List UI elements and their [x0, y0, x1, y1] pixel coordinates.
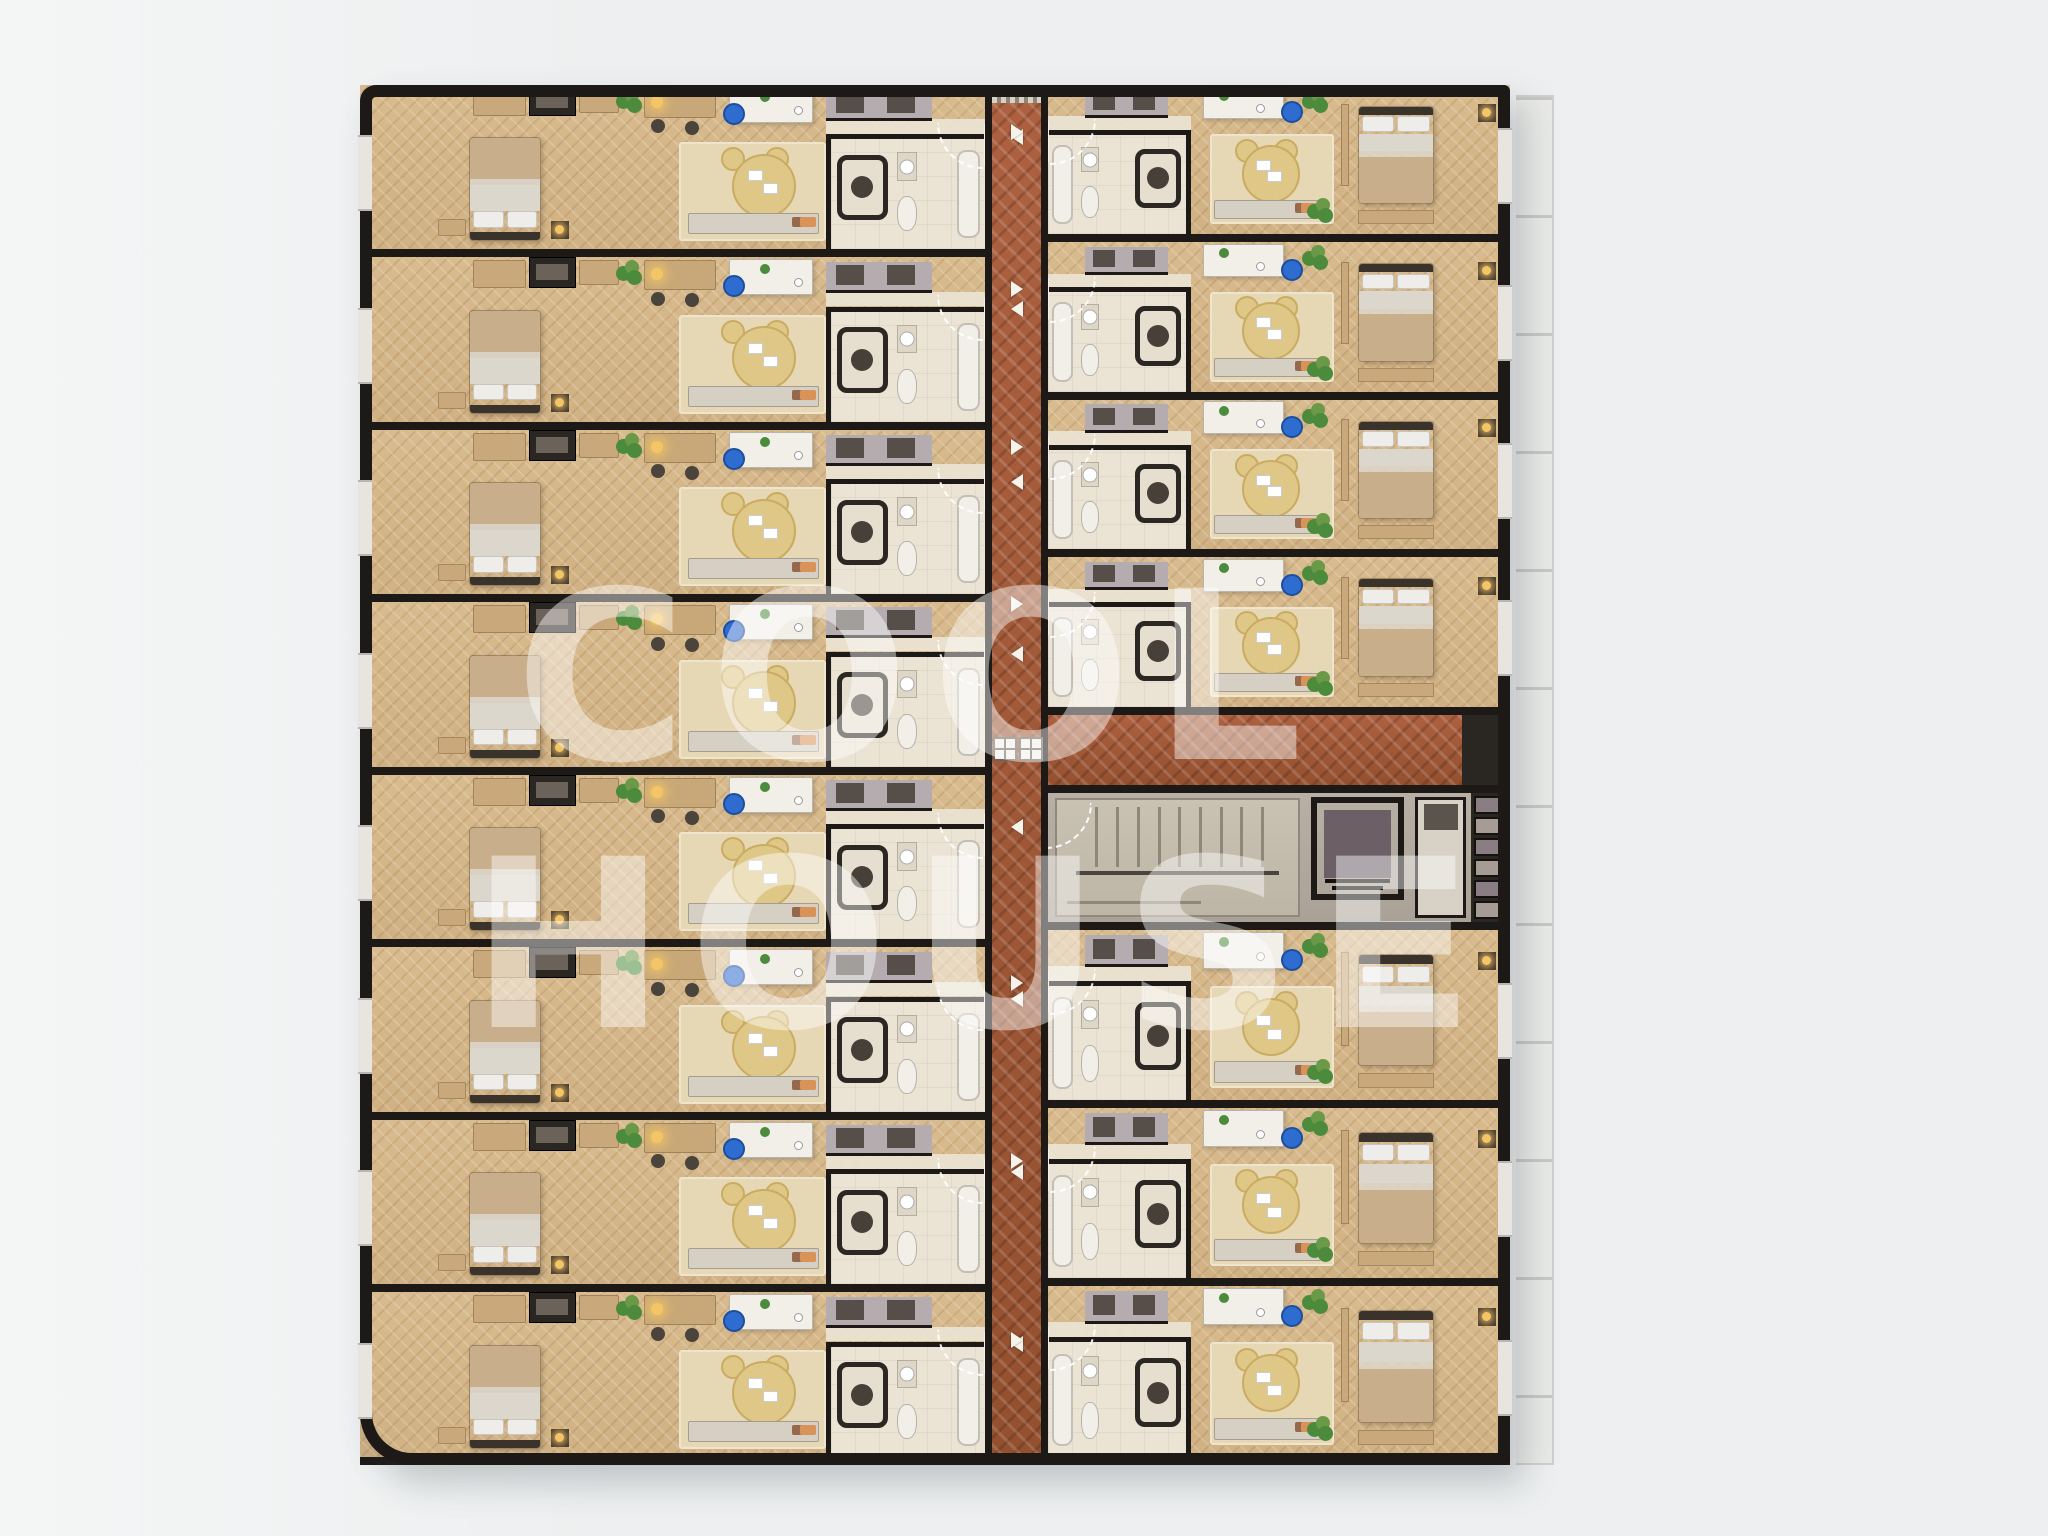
wardrobe-panel [1133, 565, 1155, 583]
table-lamp-icon [651, 1131, 663, 1143]
media-console [688, 386, 819, 407]
wardrobe-panel [887, 955, 915, 975]
plant [1307, 1059, 1333, 1085]
bed-headboard [470, 232, 540, 240]
console-table [644, 950, 716, 980]
lamp-icon [555, 915, 564, 924]
stool [651, 982, 665, 996]
paper-sheet [763, 1046, 778, 1057]
wardrobe-panel [836, 438, 864, 458]
shower-drain-icon [851, 1384, 873, 1406]
window [358, 1343, 372, 1419]
cabinet [473, 260, 526, 288]
door-direction-arrow-icon [1011, 596, 1023, 612]
stair-tread [1178, 807, 1181, 867]
wardrobe-panel [1133, 93, 1155, 111]
paper-sheet [1256, 475, 1271, 486]
pillow [507, 1074, 538, 1090]
door-direction-arrow-icon [1011, 1332, 1023, 1348]
shaft-wall [1462, 715, 1510, 785]
lamp-icon [555, 398, 564, 407]
paper-sheet [1267, 644, 1282, 655]
pillow [1362, 966, 1395, 984]
sink-basin [900, 677, 915, 692]
lamp-icon [555, 1260, 564, 1269]
bed-sheet [470, 1393, 540, 1420]
wardrobe-panel [836, 1128, 864, 1148]
staircase [1055, 798, 1300, 917]
desk-plant-icon [760, 264, 770, 274]
bed-blanket [1359, 1369, 1433, 1422]
nightstand [551, 1256, 569, 1274]
double-bed [469, 310, 541, 414]
pillow [473, 1074, 504, 1090]
cushion [800, 562, 816, 572]
stool [651, 119, 665, 133]
bed-sheet [1359, 1164, 1433, 1184]
plant [616, 260, 642, 286]
sink-basin [900, 159, 915, 174]
toilet [897, 1059, 917, 1094]
bench [438, 564, 466, 580]
door-direction-arrow-icon [1011, 439, 1023, 455]
nightstand [1478, 1130, 1496, 1148]
pillow [507, 556, 538, 572]
shower-drain-icon [1147, 167, 1169, 189]
wardrobe [1085, 935, 1168, 967]
toilet [1081, 344, 1099, 376]
bed-sheet [470, 703, 540, 730]
cushion [800, 390, 816, 400]
lamp-icon [1482, 581, 1491, 590]
partition-shelf [1341, 262, 1348, 345]
bed-sheet [1359, 134, 1433, 151]
desk [1203, 244, 1284, 277]
bed-headboard [1359, 955, 1433, 964]
sink-basin [900, 1022, 915, 1037]
bed-sheet [470, 185, 540, 211]
pillow [473, 1246, 504, 1262]
desk [1203, 1110, 1284, 1147]
lounge-armchair [1242, 998, 1300, 1056]
pillow [507, 901, 538, 917]
sink [897, 497, 917, 526]
desk-chair [723, 965, 745, 987]
paper-sheet [1256, 632, 1271, 643]
plant [1302, 560, 1328, 586]
shower-drain-icon [1147, 1025, 1169, 1047]
wardrobe-panel [836, 955, 864, 975]
shower [1135, 1358, 1181, 1427]
shower [837, 672, 888, 738]
shower [1135, 464, 1181, 524]
sink-basin [1083, 1363, 1098, 1378]
pillow [473, 211, 504, 227]
shower-drain-icon [851, 694, 873, 716]
lamp-icon [555, 1433, 564, 1442]
stool [685, 121, 699, 135]
stool [651, 1327, 665, 1341]
stair-landing-edge [1067, 901, 1202, 904]
desk-chair [1281, 1305, 1303, 1327]
double-bed [469, 482, 541, 585]
nightstand [1478, 419, 1496, 437]
paper-sheet [763, 528, 778, 539]
sink-basin [1083, 1185, 1098, 1200]
plant [1307, 1416, 1333, 1442]
paper-sheet [763, 356, 778, 367]
pillow [1397, 1144, 1430, 1162]
shower [837, 1362, 888, 1428]
wardrobe-panel [1093, 1295, 1115, 1316]
pillow [473, 384, 504, 400]
bench [1358, 368, 1434, 382]
console-table [644, 433, 716, 463]
unit-L8 [360, 1292, 985, 1465]
corridor-entry-mat [992, 91, 1041, 103]
double-bed [1358, 954, 1434, 1066]
sink [897, 1015, 917, 1044]
paper-sheet [763, 873, 778, 884]
bed-blanket [1359, 1190, 1433, 1243]
desk-chair [1281, 949, 1303, 971]
pillow [507, 1246, 538, 1262]
stool [651, 292, 665, 306]
plant [1302, 1289, 1328, 1315]
plant [1302, 403, 1328, 429]
desk [1203, 401, 1284, 434]
wardrobe-panel [836, 610, 864, 630]
sink [1081, 1178, 1099, 1208]
pillow [1362, 116, 1395, 131]
floorplan-3d-render: COOL HOUSE [0, 0, 2048, 1536]
bench [438, 1427, 466, 1444]
door-direction-arrow-icon [1011, 301, 1023, 317]
sink [897, 1187, 917, 1216]
stair-tread [1137, 807, 1140, 867]
paper-sheet [748, 688, 763, 699]
bed-sheet [470, 1220, 540, 1246]
storage-shelves [1471, 793, 1510, 922]
window [358, 1170, 372, 1246]
window [1498, 1161, 1512, 1237]
bench [438, 392, 466, 409]
double-bed [469, 827, 541, 930]
desk-chair [1281, 259, 1303, 281]
window [1498, 600, 1512, 676]
wardrobe-panel [1133, 250, 1155, 268]
sink [1081, 304, 1099, 330]
wardrobe [1085, 1113, 1168, 1145]
sink-basin [900, 332, 915, 347]
sink [1081, 462, 1099, 488]
pillow [1362, 1322, 1395, 1340]
tv-niche [529, 1292, 576, 1323]
bed-sheet [1359, 449, 1433, 466]
console-table [644, 260, 716, 290]
cushion [800, 735, 816, 745]
double-bed [469, 1172, 541, 1275]
desk-plant-icon [760, 92, 770, 102]
toilet [1081, 1045, 1099, 1081]
nightstand [551, 221, 569, 239]
bench [1358, 210, 1434, 223]
table-lamp-icon [651, 958, 663, 970]
console-table [644, 88, 716, 118]
paper-sheet [1256, 160, 1271, 171]
stair-tread [1158, 807, 1161, 867]
elevator-car [1324, 810, 1392, 877]
wardrobe-panel [1093, 93, 1115, 111]
lamp-icon [555, 225, 564, 234]
toilet [897, 196, 917, 231]
partition-shelf [1341, 952, 1348, 1046]
media-console [1214, 673, 1320, 693]
tv-niche [529, 775, 576, 806]
door-direction-arrow-icon [1011, 646, 1023, 662]
cabinet [473, 88, 526, 116]
toilet [897, 369, 917, 404]
wardrobe-panel [1093, 565, 1115, 583]
media-console [688, 1076, 819, 1097]
unit-L1 [360, 85, 985, 257]
bed-headboard [1359, 422, 1433, 430]
shower [1135, 306, 1181, 366]
shelf-cell [1474, 796, 1507, 814]
bed-headboard [470, 1095, 540, 1103]
bench [438, 909, 466, 925]
pillow [1397, 1322, 1430, 1340]
door-direction-arrow-icon [1011, 991, 1023, 1007]
plant [1307, 513, 1333, 539]
bed-sheet [470, 1048, 540, 1075]
double-bed [1358, 578, 1434, 677]
double-bed [1358, 1132, 1434, 1244]
paper-sheet [1256, 1193, 1271, 1204]
desk-plant-icon [760, 782, 770, 792]
window [358, 135, 372, 211]
desk-plant-icon [1219, 1115, 1229, 1125]
bed-headboard [470, 577, 540, 585]
media-console [688, 731, 819, 752]
stair-tread [1240, 807, 1243, 867]
unit-L2 [360, 257, 985, 430]
bed-headboard [1359, 579, 1433, 587]
cup-icon [1256, 952, 1265, 961]
media-console [1214, 1239, 1320, 1261]
bench [438, 1254, 466, 1270]
desk-chair [723, 275, 745, 297]
toilet [897, 541, 917, 576]
bed-sheet [1359, 986, 1433, 1006]
cushion [800, 217, 816, 227]
tv-niche [529, 947, 576, 978]
paper-sheet [748, 170, 763, 181]
shower [837, 155, 888, 221]
stool [651, 637, 665, 651]
plant [1302, 1111, 1328, 1137]
bench [1358, 1073, 1434, 1088]
bed-sheet [470, 875, 540, 901]
tv-niche [529, 430, 576, 461]
stool [651, 809, 665, 823]
nightstand [551, 911, 569, 929]
sink [1081, 1356, 1099, 1386]
table-lamp-icon [651, 786, 663, 798]
sink [1081, 619, 1099, 645]
wardrobe-panel [887, 783, 915, 803]
paper-sheet [763, 1218, 778, 1229]
sink [897, 842, 917, 871]
toilet [1081, 501, 1099, 533]
elevator-door [1332, 886, 1383, 891]
bed-blanket [1359, 157, 1433, 203]
bed-sheet [1359, 606, 1433, 623]
plant [616, 778, 642, 804]
toilet [897, 714, 917, 749]
stair-tread [1116, 807, 1119, 867]
cabinet [579, 950, 620, 975]
plant [1302, 88, 1328, 114]
unit-L5 [360, 775, 985, 947]
side-terrace-strip [1516, 95, 1554, 1465]
shelf-cell [1474, 901, 1507, 919]
shelf-cell [1474, 838, 1507, 856]
wardrobe-panel [887, 265, 915, 285]
bed-blanket [1359, 629, 1433, 676]
unit-L3 [360, 430, 985, 602]
table-lamp-icon [651, 441, 663, 453]
pillow [1397, 589, 1430, 605]
sink [897, 1360, 917, 1389]
toilet [1081, 1402, 1099, 1439]
wardrobe-panel [1133, 1295, 1155, 1316]
nightstand [1478, 577, 1496, 595]
wardrobe [826, 1297, 932, 1328]
elevator-shaft [1311, 797, 1403, 900]
shelf-cell [1474, 880, 1507, 898]
desk-plant-icon [1219, 406, 1229, 416]
lamp-icon [1482, 1312, 1491, 1321]
media-console [1214, 515, 1320, 534]
wardrobe-panel [1133, 939, 1155, 960]
door-direction-arrow-icon [1011, 975, 1023, 991]
wardrobe-panel [887, 438, 915, 458]
double-bed [469, 655, 541, 759]
sink-basin [1083, 467, 1098, 482]
tv-niche [529, 257, 576, 288]
media-console [1214, 358, 1320, 378]
wardrobe [826, 262, 932, 293]
unit-R1 [1048, 85, 1510, 242]
utility-room [1415, 797, 1466, 918]
toilet [897, 1231, 917, 1266]
plant [1307, 1237, 1333, 1263]
plant [616, 88, 642, 114]
unit-R4 [1048, 557, 1510, 715]
stool [651, 1154, 665, 1168]
lamp-icon [1482, 1134, 1491, 1143]
cup-icon [1256, 1130, 1265, 1139]
shower-drain-icon [1147, 1203, 1169, 1225]
floor-drain-grid [1019, 737, 1043, 761]
shower-drain-icon [1147, 640, 1169, 662]
cup-icon [1256, 262, 1265, 271]
partition-shelf [1341, 104, 1348, 186]
stool [685, 466, 699, 480]
door-direction-arrow-icon [1011, 1153, 1023, 1169]
lamp-icon [1482, 423, 1491, 432]
stair-tread [1261, 807, 1264, 867]
cushion [800, 1080, 816, 1090]
toilet [897, 886, 917, 921]
sink [897, 325, 917, 354]
double-bed [1358, 421, 1434, 519]
pillow [507, 384, 538, 400]
window [358, 308, 372, 384]
lounge-armchair [1242, 1176, 1300, 1234]
unit-R6 [1048, 1108, 1510, 1286]
desk-plant-icon [1219, 91, 1229, 101]
sink [897, 670, 917, 699]
plant [1302, 245, 1328, 271]
bench [1358, 1251, 1434, 1266]
media-console [688, 1421, 819, 1442]
cabinet [579, 88, 620, 113]
desk-plant-icon [760, 954, 770, 964]
nightstand [551, 739, 569, 757]
nightstand [551, 566, 569, 584]
sink-basin [1083, 625, 1098, 640]
bed-headboard [470, 1267, 540, 1275]
window [1498, 128, 1512, 204]
tv-niche [529, 602, 576, 633]
pillow [1362, 431, 1395, 446]
pillow [473, 901, 504, 917]
toilet [1081, 1223, 1099, 1259]
plant [1302, 933, 1328, 959]
paper-sheet [1256, 1015, 1271, 1026]
wardrobe-panel [1093, 939, 1115, 960]
shower-drain-icon [851, 1211, 873, 1233]
door-direction-arrow-icon [1011, 474, 1023, 490]
bed-sheet [470, 530, 540, 556]
bed-headboard [470, 1440, 540, 1448]
shower [837, 327, 888, 393]
shower [1135, 1002, 1181, 1070]
lamp-icon [1482, 108, 1491, 117]
plant [616, 1295, 642, 1321]
media-console [1214, 200, 1320, 219]
bed-sheet [470, 358, 540, 385]
plant [616, 433, 642, 459]
wardrobe-panel [836, 783, 864, 803]
lamp-icon [555, 743, 564, 752]
pillow [1397, 274, 1430, 290]
pillow [507, 729, 538, 745]
cushion [800, 1252, 816, 1262]
desk-plant-icon [760, 1127, 770, 1137]
double-bed [1358, 1310, 1434, 1423]
console-table [644, 605, 716, 635]
paper-sheet [1256, 317, 1271, 328]
plant [1307, 198, 1333, 224]
pillow [1397, 431, 1430, 446]
desk [1203, 932, 1284, 969]
sink-basin [900, 1194, 915, 1209]
bed-headboard [1359, 1311, 1433, 1320]
shower [1135, 1180, 1181, 1248]
